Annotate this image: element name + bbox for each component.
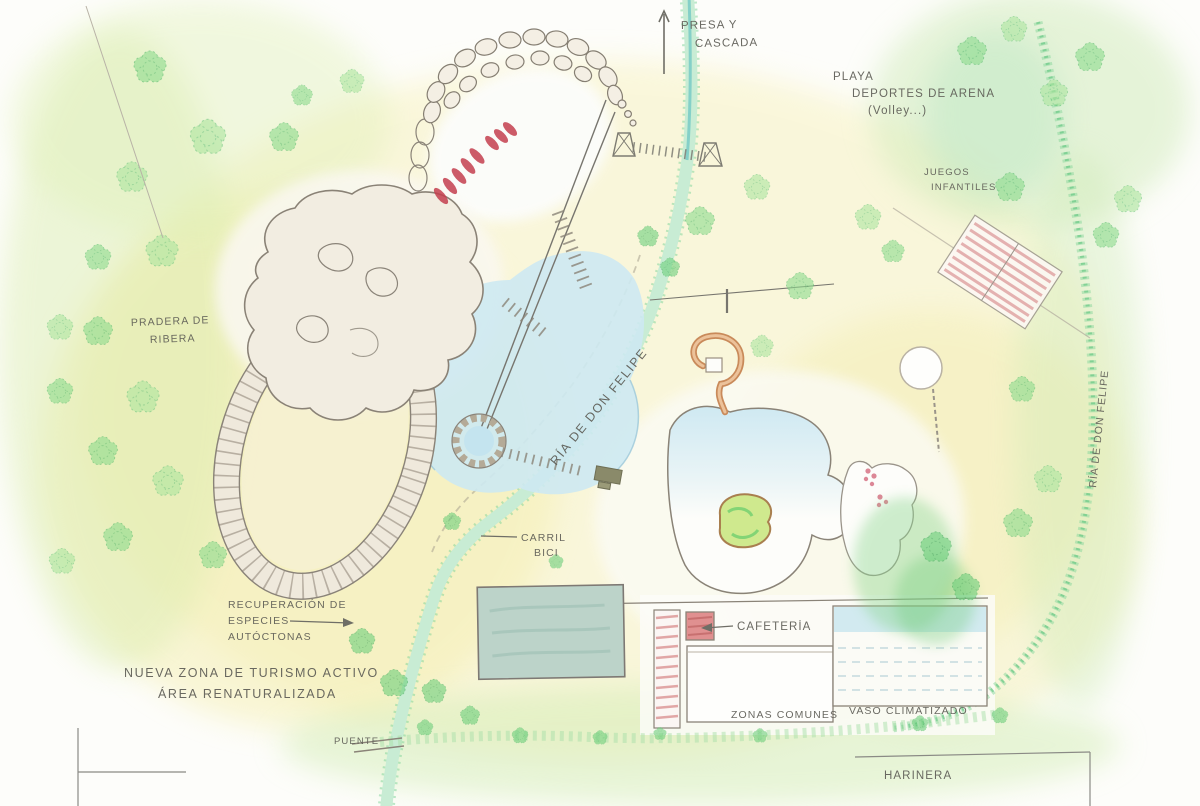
label-puente: PUENTE xyxy=(334,736,379,747)
label-carril-line2: BICI xyxy=(534,547,559,559)
label-vaso-climatizado: VASO CLIMATIZADO xyxy=(849,705,968,717)
label-presa-line1: PRESA Y xyxy=(681,19,738,32)
label-recuperacion-line2: ESPECIES xyxy=(228,615,289,627)
outdoor-pool xyxy=(477,585,625,680)
label-recuperacion-line1: RECUPERACIÓN DE xyxy=(228,598,347,611)
label-zonas-comunes: ZONAS COMUNES xyxy=(731,709,838,721)
label-carril-line1: CARRIL xyxy=(521,532,566,544)
label-nueva-zona-line1: NUEVA ZONA DE TURISMO ACTIVO xyxy=(124,666,379,680)
label-presa-line2: CASCADA xyxy=(695,37,758,50)
label-harinera: HARINERA xyxy=(884,770,952,782)
label-juegos-line2: INFANTILES xyxy=(931,182,996,193)
label-nueva-zona-line2: ÁREA RENATURALIZADA xyxy=(158,686,337,701)
label-playa-line2: DEPORTES DE ARENA xyxy=(852,88,995,100)
label-pradera-line2: RIBERA xyxy=(150,332,196,346)
plan-drawing: PRESA Y CASCADA PLAYA DEPORTES DE ARENA … xyxy=(0,0,1200,806)
label-cafeteria: CAFETERÍA xyxy=(737,620,811,633)
label-playa-line1: PLAYA xyxy=(833,71,874,83)
park-plan-sketch: PRESA Y CASCADA PLAYA DEPORTES DE ARENA … xyxy=(0,0,1200,806)
pool-island xyxy=(720,494,771,547)
label-playa-line3: (Volley...) xyxy=(868,105,927,117)
label-juegos-line1: JUEGOS xyxy=(924,167,970,178)
label-recuperacion-line3: AUTÓCTONAS xyxy=(228,630,312,643)
